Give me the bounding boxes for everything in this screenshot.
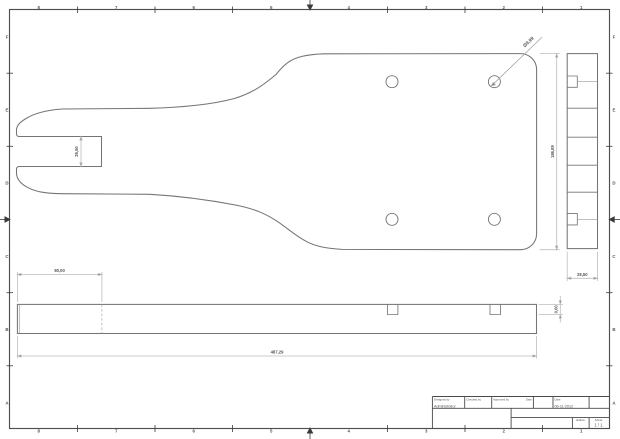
svg-text:Date: Date	[555, 397, 561, 401]
svg-text:26,50: 26,50	[74, 146, 79, 157]
svg-text:E: E	[613, 108, 616, 113]
svg-text:1 / 1: 1 / 1	[594, 423, 603, 428]
svg-text:487,29: 487,29	[271, 350, 284, 355]
svg-text:Approved by: Approved by	[493, 397, 509, 401]
svg-text:06-11-2012: 06-11-2012	[555, 404, 574, 408]
svg-text:B: B	[5, 327, 8, 332]
svg-text:Checked by: Checked by	[466, 397, 481, 401]
svg-text:Sheet: Sheet	[595, 418, 603, 422]
svg-text:28,50: 28,50	[577, 272, 588, 277]
svg-text:0,00: 0,00	[554, 305, 559, 314]
svg-text:D: D	[612, 181, 615, 186]
svg-text:Date: Date	[526, 397, 532, 401]
svg-text:F: F	[6, 34, 9, 39]
svg-text:Designed by: Designed by	[434, 397, 450, 401]
svg-text:E: E	[6, 108, 9, 113]
svg-text:Administrator: Administrator	[434, 404, 456, 408]
svg-text:186,89: 186,89	[550, 145, 555, 158]
svg-text:F: F	[613, 34, 616, 39]
svg-text:80,00: 80,00	[54, 268, 65, 273]
svg-text:D: D	[5, 181, 8, 186]
svg-text:B: B	[612, 327, 615, 332]
svg-text:Edition: Edition	[576, 418, 585, 422]
